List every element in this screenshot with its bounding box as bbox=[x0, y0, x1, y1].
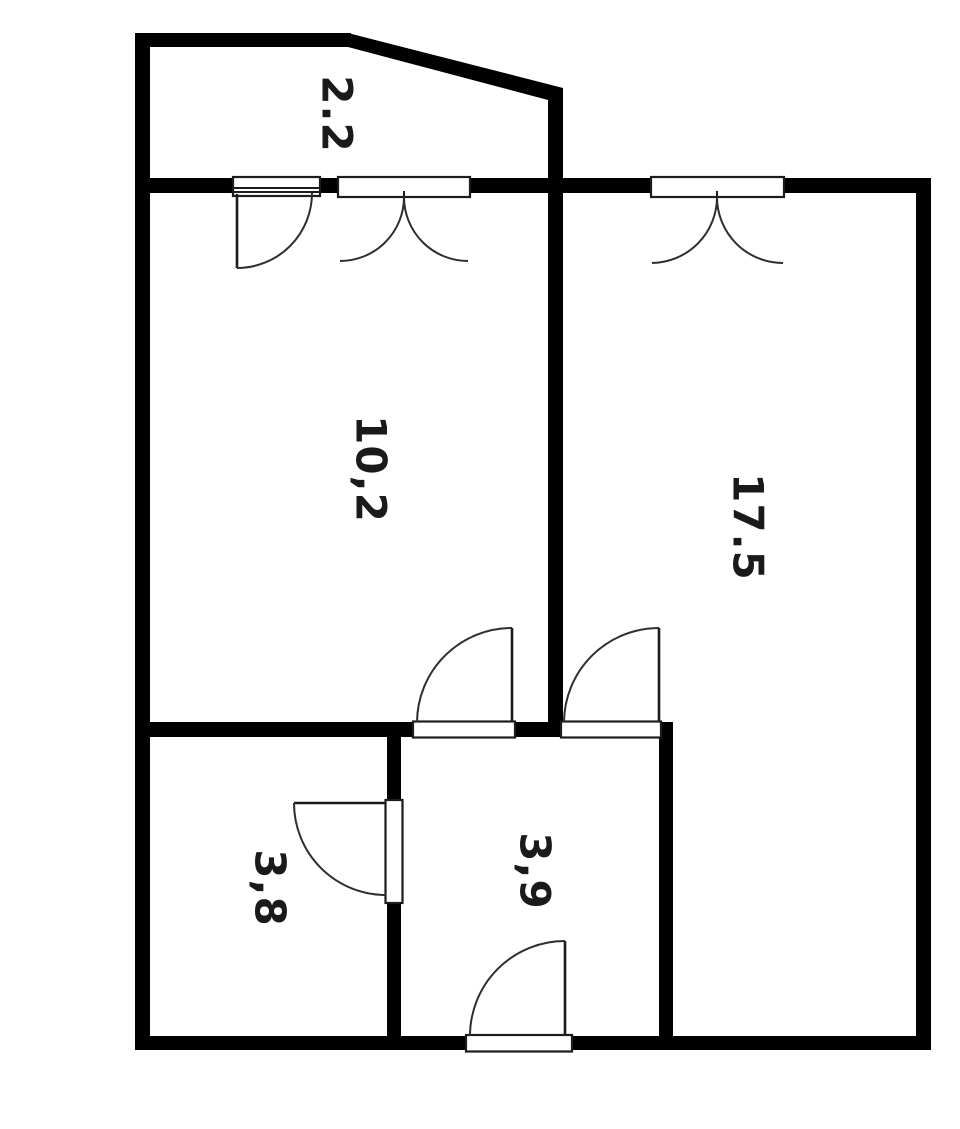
door-38-swing-arc bbox=[294, 803, 386, 895]
wall-right-exterior bbox=[916, 178, 931, 1050]
room-label-right-room: 17.5 bbox=[724, 473, 773, 581]
room-label-left-room: 10,2 bbox=[347, 415, 396, 523]
door-left-room-icon bbox=[413, 628, 515, 738]
wall-39-175-divider bbox=[659, 722, 673, 1050]
doors bbox=[294, 628, 661, 1052]
balcony-door-swing-arc bbox=[237, 193, 312, 268]
door-38-threshold bbox=[386, 800, 403, 903]
floor-plan-page: 2.2 10,2 17.5 3,8 3,9 bbox=[0, 0, 960, 1129]
door-right-swing-arc bbox=[564, 628, 659, 722]
entrance-door-swing-arc bbox=[470, 941, 565, 1036]
entrance-door-icon bbox=[466, 941, 572, 1052]
wall-balcony-diagonal bbox=[348, 33, 563, 104]
door-left-swing-arc bbox=[417, 628, 512, 722]
door-between-bottom-rooms-icon bbox=[294, 800, 403, 903]
floor-plan-drawing: 2.2 10,2 17.5 3,8 3,9 bbox=[0, 0, 960, 1129]
door-left-threshold bbox=[413, 722, 515, 738]
door-right-threshold bbox=[561, 722, 661, 738]
wall-balcony-top bbox=[135, 33, 351, 47]
room-label-bottom-middle: 3,9 bbox=[511, 832, 560, 909]
room-labels: 2.2 10,2 17.5 3,8 3,9 bbox=[246, 75, 773, 926]
top-double-casement-window-icon bbox=[651, 177, 784, 263]
balcony-double-casement-window-icon bbox=[338, 177, 470, 261]
balcony-window-icon bbox=[233, 177, 320, 268]
door-right-room-icon bbox=[561, 628, 661, 738]
entrance-threshold bbox=[466, 1035, 572, 1052]
room-label-balcony: 2.2 bbox=[313, 75, 362, 152]
room-label-bottom-left: 3,8 bbox=[246, 849, 295, 926]
